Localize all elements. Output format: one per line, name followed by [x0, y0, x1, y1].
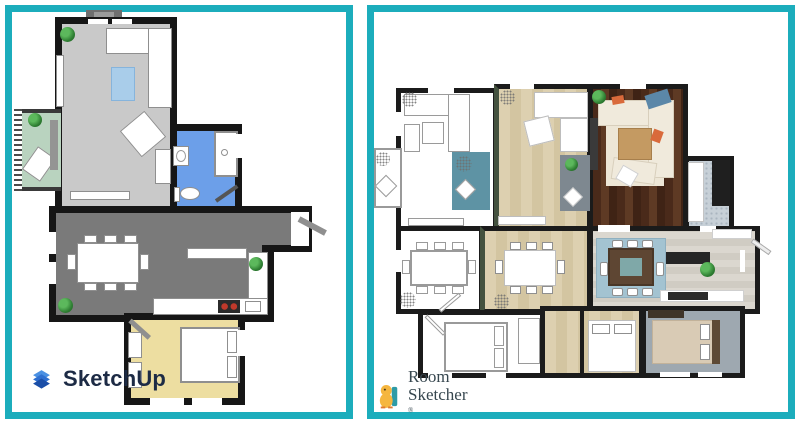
chair-outline: [434, 242, 446, 250]
pillow: [700, 344, 710, 360]
plant-sketch: [500, 90, 515, 105]
plant-sketch: [494, 294, 509, 309]
cooktop: [668, 292, 708, 300]
chair: [612, 288, 623, 296]
plant: [592, 90, 606, 104]
chair: [627, 288, 638, 296]
sofa-chaise-outline: [448, 94, 470, 152]
headboard: [712, 320, 720, 364]
window: [740, 250, 745, 272]
window: [660, 372, 690, 377]
sideboard: [498, 216, 546, 225]
pillow-outline: [494, 348, 504, 368]
dining-table-outline: [410, 250, 468, 286]
chair: [656, 262, 664, 276]
table-runner: [620, 258, 642, 276]
coffee-table: [618, 128, 652, 160]
chair: [627, 240, 638, 248]
plant: [565, 158, 578, 171]
balcony-plant-sketch: [376, 152, 390, 166]
window: [428, 88, 454, 93]
registered-mark: ®: [408, 406, 413, 414]
plant: [700, 262, 715, 277]
sofa: [534, 92, 588, 118]
chair: [612, 240, 623, 248]
dining-chair: [495, 260, 503, 274]
window: [396, 112, 401, 136]
pillow-outline: [494, 326, 504, 346]
window: [486, 373, 506, 378]
roomsketcher-logo: Room Sketcher®: [378, 368, 467, 423]
wardrobe-outline: [518, 318, 540, 364]
interior-wall: [580, 310, 584, 374]
dining-chair: [542, 286, 553, 294]
fridge-counter: [712, 229, 752, 239]
dining-chair: [557, 260, 565, 274]
floorplan-comparison-graphic: SketchUp: [0, 0, 800, 425]
chair: [600, 262, 608, 276]
pillow: [592, 324, 610, 334]
sofa-chaise: [560, 118, 588, 152]
chair-outline: [416, 286, 428, 294]
window: [598, 225, 630, 232]
chair-outline: [402, 260, 410, 274]
dining-chair: [510, 286, 521, 294]
roomsketcher-brand-text: Room Sketcher®: [408, 368, 467, 423]
bathroom-vanity: [712, 160, 730, 206]
dining-chair: [542, 242, 553, 250]
roomsketcher-floorplan: Room Sketcher®: [0, 0, 800, 425]
chair: [642, 288, 653, 296]
window: [620, 84, 646, 89]
chair-outline: [416, 242, 428, 250]
plant-sketch: [400, 292, 416, 308]
window: [698, 372, 722, 377]
plant-sketch: [456, 156, 472, 172]
window: [396, 250, 401, 272]
roomsketcher-brand-line2: Sketcher®: [408, 386, 467, 423]
sideboard-outline: [408, 218, 464, 226]
window: [510, 84, 534, 89]
pillow: [614, 324, 632, 334]
media-bench: [590, 118, 598, 170]
dresser: [648, 310, 684, 318]
chair: [642, 240, 653, 248]
chair-outline: [468, 260, 476, 274]
pillow: [700, 324, 710, 340]
armchair-outline: [404, 124, 420, 152]
dining-chair: [526, 286, 537, 294]
roomsketcher-mascot-icon: [378, 381, 400, 411]
table-outline: [422, 122, 444, 144]
dining-chair: [526, 242, 537, 250]
chair-outline: [434, 286, 446, 294]
dining-table: [504, 250, 556, 286]
plant-sketch: [402, 92, 417, 107]
bathtub: [688, 162, 704, 222]
chair-outline: [452, 242, 464, 250]
dining-chair: [510, 242, 521, 250]
roomsketcher-brand-line1: Room: [408, 368, 467, 386]
